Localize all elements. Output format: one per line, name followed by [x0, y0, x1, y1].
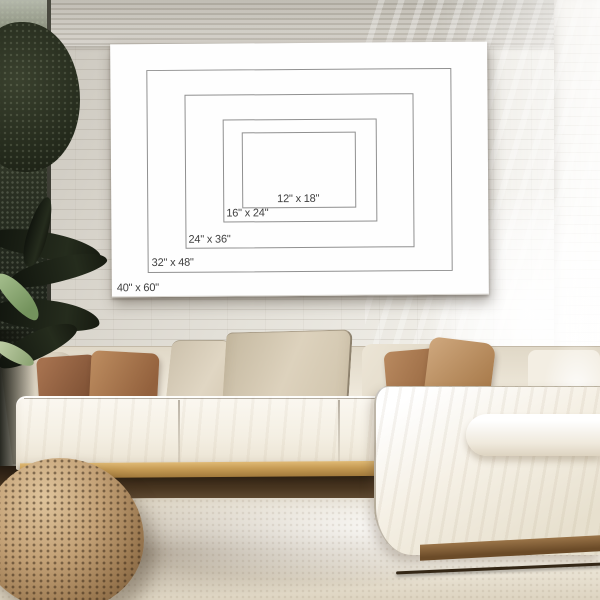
size-label-12x18: 12" x 18"	[242, 193, 354, 206]
chaise-section	[374, 386, 600, 555]
size-label-16x24: 16" x 24"	[226, 207, 268, 219]
size-label-40x60: 40" x 60"	[117, 282, 159, 294]
size-label-32x48: 32" x 48"	[152, 257, 194, 269]
size-label-24x36: 24" x 36"	[188, 233, 230, 245]
seat-seam	[178, 400, 180, 466]
size-chart-poster: 12" x 18" 16" x 24" 24" x 36" 32" x 48" …	[110, 42, 489, 298]
seat-seam	[338, 400, 340, 466]
living-room-scene: 12" x 18" 16" x 24" 24" x 36" 32" x 48" …	[0, 0, 600, 600]
bolster-pillow	[466, 414, 600, 456]
